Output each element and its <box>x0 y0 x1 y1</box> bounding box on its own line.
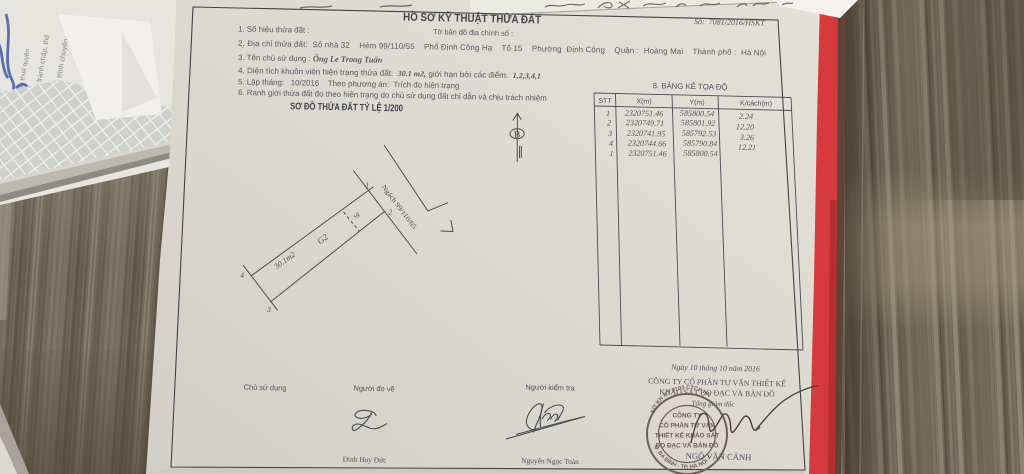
svg-text:1: 1 <box>366 182 370 190</box>
svg-text:CÔNG TY: CÔNG TY <box>672 411 702 420</box>
svg-text:B: B <box>514 131 520 141</box>
svg-text:585792.53: 585792.53 <box>682 129 717 139</box>
svg-text:1. Số hiệu thửa đất :: 1. Số hiệu thửa đất : <box>238 25 310 35</box>
svg-text:2: 2 <box>389 209 393 217</box>
svg-text:Y(m): Y(m) <box>689 99 704 106</box>
svg-text:Đinh Huy Đức: Đinh Huy Đức <box>343 455 388 465</box>
svg-text:K/cách(m): K/cách(m) <box>740 100 772 108</box>
svg-text:12.21: 12.21 <box>738 143 756 152</box>
svg-text:4: 4 <box>241 272 245 280</box>
svg-text:8. BẢNG KÊ TỌA ĐỘ: 8. BẢNG KÊ TỌA ĐỘ <box>653 81 728 92</box>
svg-text:Chủ sử dụng: Chủ sử dụng <box>244 383 287 393</box>
svg-text:X(m): X(m) <box>636 98 651 105</box>
svg-text:585800.54: 585800.54 <box>683 149 718 159</box>
svg-text:1: 1 <box>606 109 610 118</box>
svg-text:3: 3 <box>607 129 612 138</box>
svg-text:Người đo vẽ: Người đo vẽ <box>353 384 394 394</box>
svg-text:4: 4 <box>609 139 613 148</box>
svg-text:585800.54: 585800.54 <box>680 109 715 119</box>
svg-text:SƠ ĐỒ THỬA ĐẤT TỶ LỆ 1/200: SƠ ĐỒ THỬA ĐẤT TỶ LỆ 1/200 <box>290 100 404 114</box>
svg-text:2: 2 <box>607 118 611 127</box>
svg-text:Tờ bản đồ địa chính số :: Tờ bản đồ địa chính số : <box>433 27 513 38</box>
svg-text:12.20: 12.20 <box>736 122 754 131</box>
svg-text:585801.92: 585801.92 <box>681 118 716 128</box>
svg-text:Người kiểm tra: Người kiểm tra <box>525 382 575 392</box>
svg-text:585790.84: 585790.84 <box>683 139 718 149</box>
svg-text:Số: 7081/2016/HSKT: Số: 7081/2016/HSKT <box>694 17 765 28</box>
svg-text:1: 1 <box>609 149 613 158</box>
svg-text:3.26: 3.26 <box>739 133 754 142</box>
svg-text:2320751.46: 2320751.46 <box>628 149 667 159</box>
svg-text:3: 3 <box>266 306 271 314</box>
svg-text:2320749.71: 2320749.71 <box>626 118 665 128</box>
svg-text:2320751.46: 2320751.46 <box>625 109 664 119</box>
svg-text:2.24: 2.24 <box>739 112 753 121</box>
svg-text:STT: STT <box>598 98 612 105</box>
svg-text:NGÔ VĂN CẢNH: NGÔ VĂN CẢNH <box>686 451 752 462</box>
svg-text:2320744.66: 2320744.66 <box>628 139 667 149</box>
svg-text:Nguyễn Ngọc Toàn: Nguyễn Ngọc Toàn <box>521 456 579 466</box>
svg-text:2320741.95: 2320741.95 <box>627 129 666 139</box>
